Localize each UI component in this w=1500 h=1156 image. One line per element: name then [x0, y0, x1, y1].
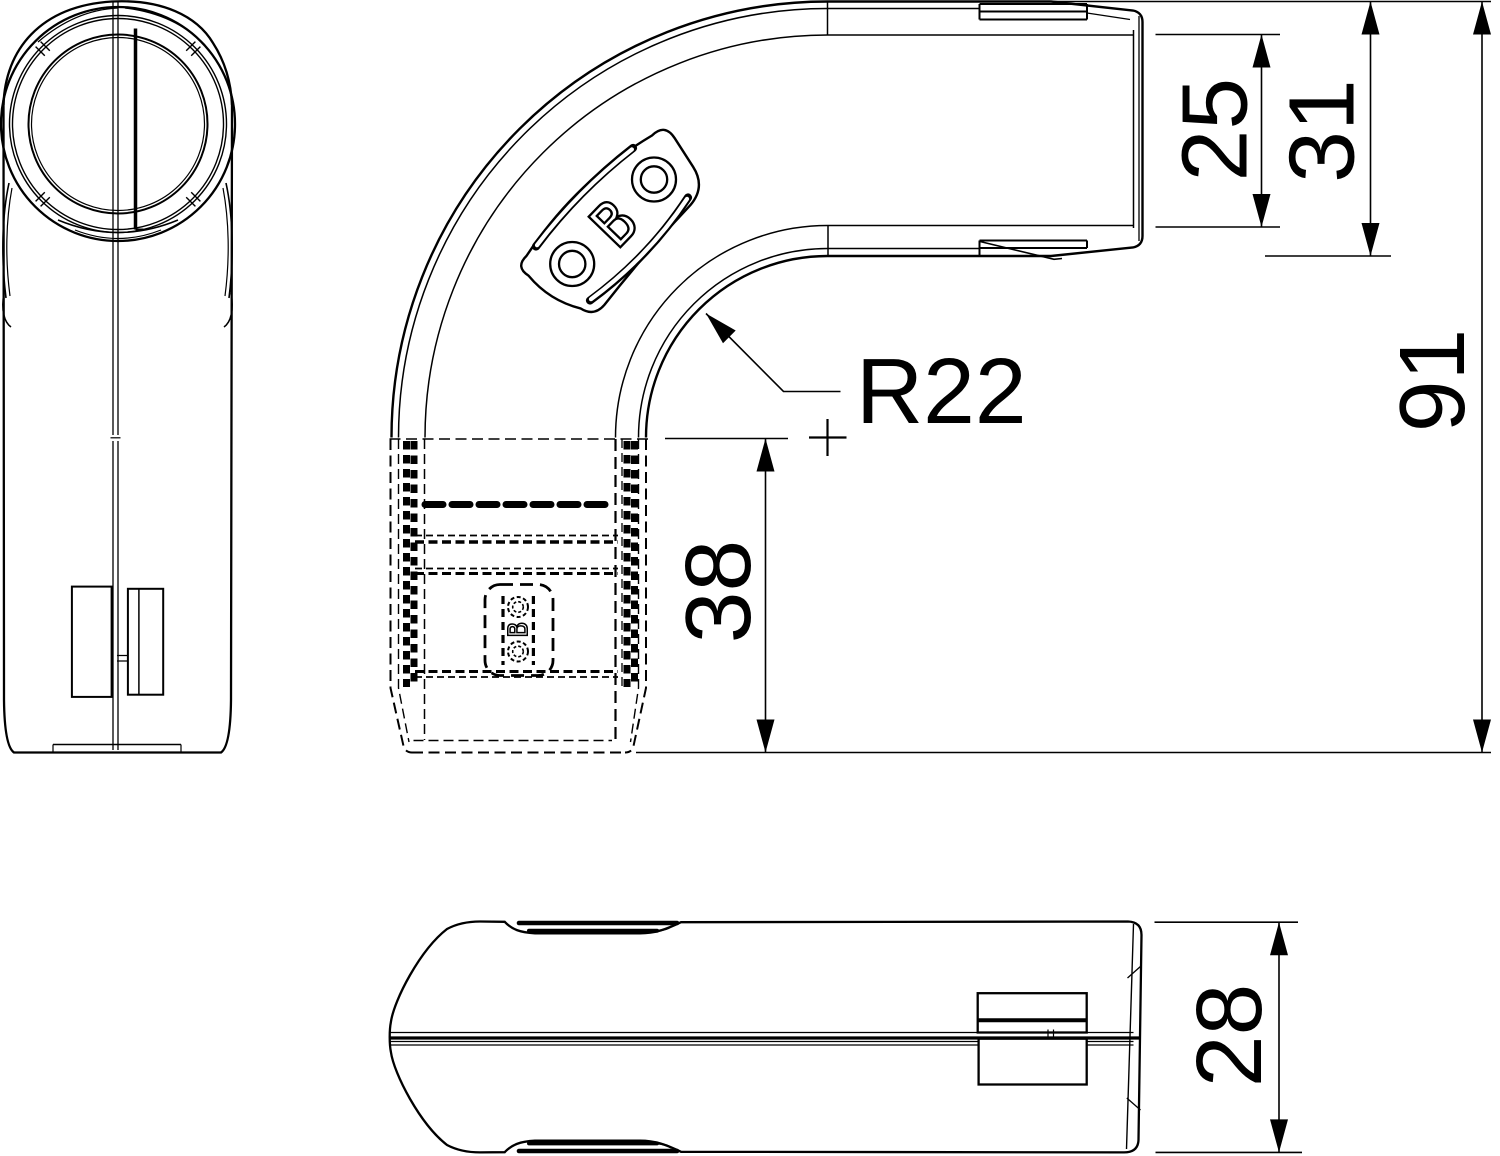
svg-text:38: 38: [666, 540, 770, 643]
svg-text:R22: R22: [856, 339, 1027, 443]
svg-text:91: 91: [1380, 329, 1484, 432]
svg-text:25: 25: [1163, 78, 1267, 181]
svg-text:31: 31: [1270, 79, 1374, 182]
svg-text:28: 28: [1177, 984, 1281, 1087]
